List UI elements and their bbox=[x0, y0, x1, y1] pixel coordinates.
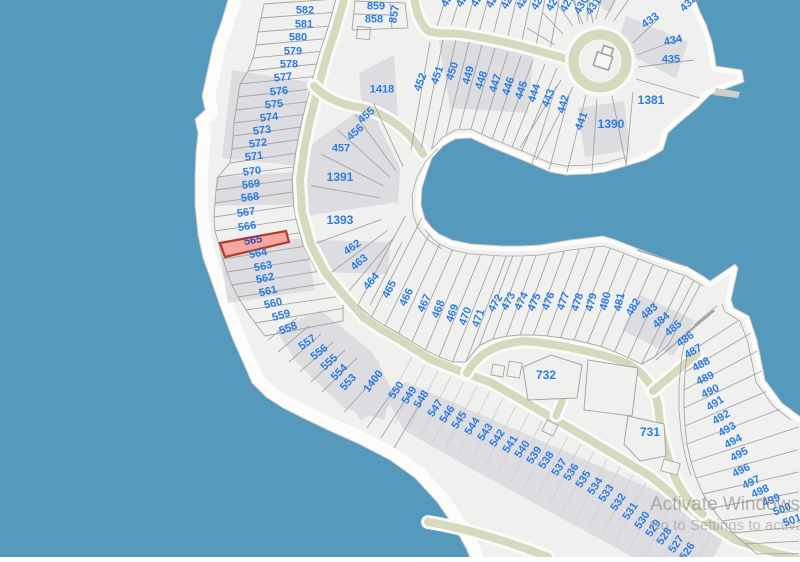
svg-text:732: 732 bbox=[536, 368, 556, 382]
svg-text:572: 572 bbox=[248, 137, 268, 151]
svg-text:859: 859 bbox=[367, 1, 385, 13]
svg-text:1391: 1391 bbox=[327, 170, 354, 184]
svg-text:568: 568 bbox=[240, 190, 260, 204]
svg-text:573: 573 bbox=[252, 124, 272, 138]
svg-text:1390: 1390 bbox=[598, 117, 625, 131]
svg-text:1418: 1418 bbox=[370, 84, 394, 96]
svg-text:731: 731 bbox=[640, 425, 660, 439]
svg-text:578: 578 bbox=[280, 59, 298, 71]
svg-text:Go to Settings to activate Win: Go to Settings to activate Windows. bbox=[649, 517, 800, 534]
svg-text:579: 579 bbox=[284, 46, 302, 58]
svg-text:580: 580 bbox=[289, 32, 307, 44]
svg-text:574: 574 bbox=[259, 111, 280, 125]
svg-text:576: 576 bbox=[269, 85, 289, 99]
svg-text:582: 582 bbox=[296, 5, 314, 17]
svg-text:571: 571 bbox=[244, 149, 264, 163]
svg-text:457: 457 bbox=[332, 143, 350, 155]
svg-text:858: 858 bbox=[365, 14, 383, 26]
svg-text:581: 581 bbox=[295, 19, 313, 31]
svg-text:435: 435 bbox=[662, 54, 680, 66]
svg-text:577: 577 bbox=[273, 71, 293, 85]
svg-text:1393: 1393 bbox=[327, 213, 354, 227]
svg-text:Activate Windows: Activate Windows bbox=[650, 494, 800, 515]
svg-text:575: 575 bbox=[264, 98, 284, 112]
svg-text:1381: 1381 bbox=[638, 93, 665, 107]
